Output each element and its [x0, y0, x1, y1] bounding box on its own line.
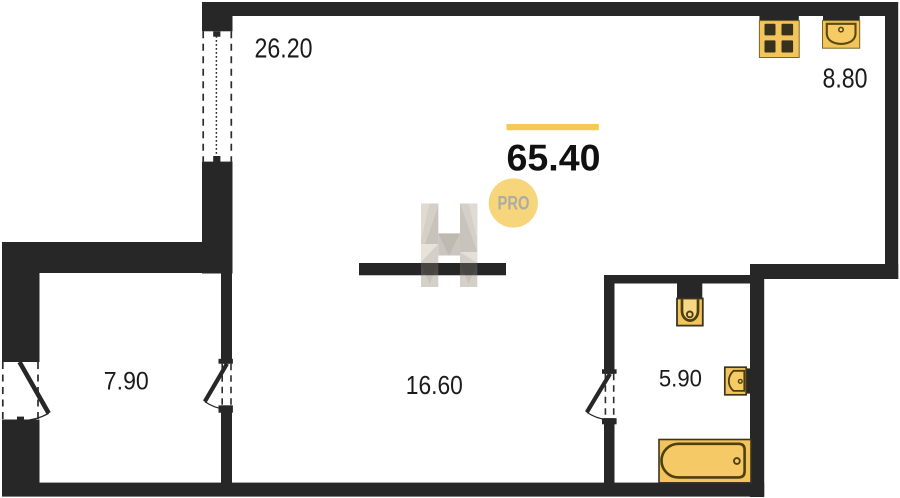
svg-text:26.20: 26.20	[255, 33, 313, 64]
svg-text:PRO: PRO	[498, 194, 530, 215]
svg-text:5.90: 5.90	[659, 366, 702, 393]
svg-text:8.80: 8.80	[823, 63, 868, 94]
svg-text:65.40: 65.40	[507, 136, 601, 178]
svg-text:16.60: 16.60	[406, 370, 463, 400]
svg-text:7.90: 7.90	[104, 369, 149, 396]
